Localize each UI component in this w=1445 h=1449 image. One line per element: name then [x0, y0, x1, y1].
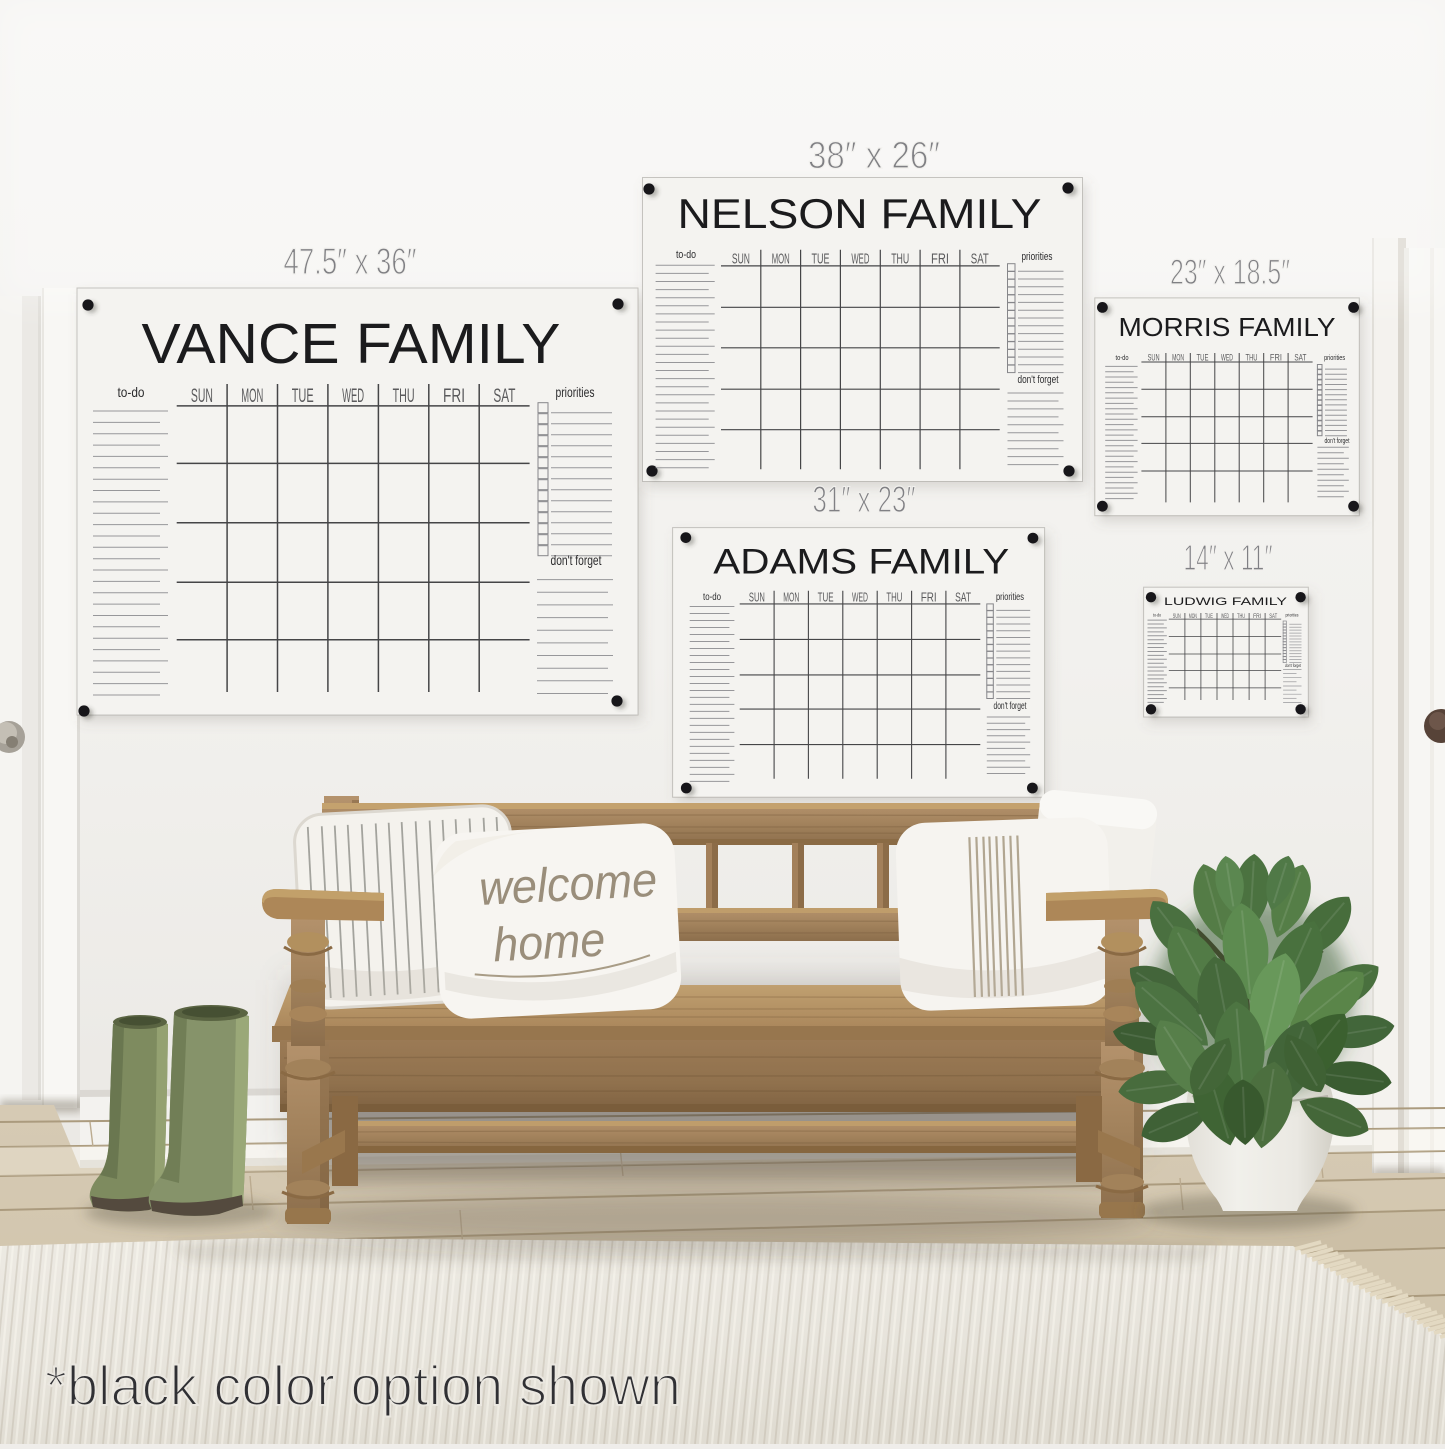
svg-text:SAT: SAT [493, 386, 515, 407]
svg-text:THU: THU [393, 386, 415, 407]
svg-text:WED: WED [851, 251, 869, 268]
svg-text:14″ x 11″: 14″ x 11″ [1184, 537, 1273, 578]
svg-text:don't forget: don't forget [551, 552, 602, 568]
svg-text:priorities: priorities [996, 592, 1024, 603]
svg-text:MON: MON [241, 386, 263, 407]
svg-text:home: home [492, 914, 607, 973]
svg-text:priorities: priorities [1324, 353, 1345, 362]
svg-text:FRI: FRI [443, 386, 465, 407]
svg-text:TUE: TUE [812, 251, 830, 268]
svg-text:MON: MON [783, 590, 799, 605]
svg-text:ADAMS FAMILY: ADAMS FAMILY [713, 543, 1009, 582]
svg-text:FRI: FRI [921, 590, 937, 605]
svg-text:WED: WED [342, 386, 364, 407]
svg-text:THU: THU [891, 251, 909, 268]
svg-text:don't forget: don't forget [1285, 663, 1302, 668]
svg-text:SUN: SUN [191, 386, 213, 407]
svg-text:VANCE FAMILY: VANCE FAMILY [142, 312, 561, 376]
svg-text:SUN: SUN [749, 590, 765, 605]
svg-text:THU: THU [886, 590, 902, 605]
svg-text:MON: MON [772, 251, 790, 268]
svg-text:47.5″ x 36″: 47.5″ x 36″ [284, 241, 417, 282]
svg-text:FRI: FRI [931, 251, 949, 268]
svg-text:to-do: to-do [703, 592, 721, 603]
svg-text:to-do: to-do [676, 249, 696, 261]
svg-text:TUE: TUE [818, 590, 834, 605]
svg-text:SAT: SAT [971, 251, 989, 268]
svg-text:31″ x 23″: 31″ x 23″ [813, 479, 916, 520]
svg-text:WED: WED [852, 590, 868, 605]
svg-text:welcome: welcome [478, 854, 659, 916]
svg-text:MORRIS FAMILY: MORRIS FAMILY [1119, 314, 1336, 342]
svg-text:don't forget: don't forget [994, 701, 1027, 712]
svg-text:*black color option shown: *black color option shown [45, 1354, 681, 1417]
svg-text:NELSON FAMILY: NELSON FAMILY [678, 190, 1042, 237]
svg-text:SUN: SUN [732, 251, 750, 268]
svg-text:LUDWIG FAMILY: LUDWIG FAMILY [1164, 596, 1288, 608]
svg-text:priorities: priorities [1022, 251, 1053, 263]
svg-text:TUE: TUE [292, 386, 314, 407]
svg-text:38″ x 26″: 38″ x 26″ [808, 135, 940, 177]
svg-text:priorities: priorities [1286, 613, 1300, 618]
svg-text:priorities: priorities [556, 384, 595, 400]
svg-text:don't forget: don't forget [1325, 436, 1351, 445]
svg-text:to-do: to-do [1153, 613, 1161, 618]
svg-text:to-do: to-do [118, 384, 145, 400]
svg-text:SAT: SAT [955, 590, 971, 605]
svg-text:don't forget: don't forget [1018, 374, 1059, 386]
svg-text:23″ x 18.5″: 23″ x 18.5″ [1170, 253, 1290, 292]
svg-text:to-do: to-do [1116, 353, 1129, 362]
